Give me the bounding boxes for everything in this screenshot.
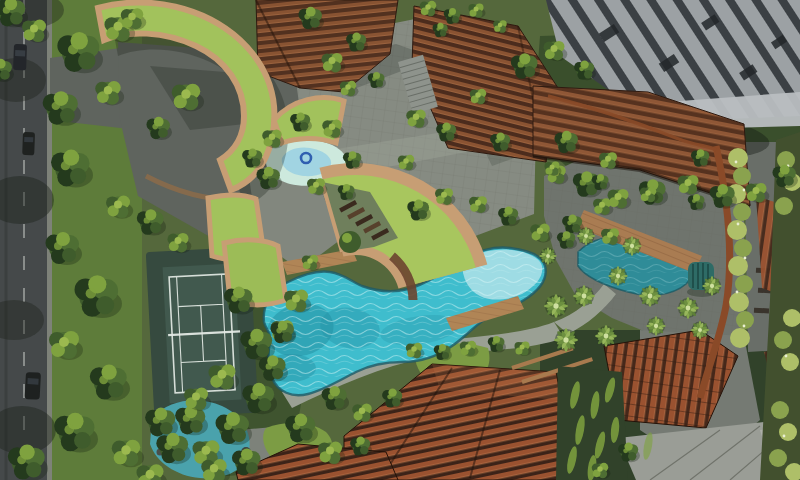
tree (172, 84, 204, 112)
tree (284, 290, 311, 313)
tree (470, 89, 489, 105)
car (22, 132, 35, 155)
palm-tree (544, 294, 568, 318)
tree (469, 196, 489, 213)
palm-tree (639, 285, 661, 307)
tree (184, 388, 211, 411)
palm-tree (577, 227, 596, 246)
palm-tree (646, 316, 666, 336)
palm-tree (622, 236, 642, 256)
tree (406, 343, 425, 359)
tree (469, 4, 486, 19)
car (25, 372, 41, 400)
tree (95, 81, 124, 106)
car (13, 44, 27, 70)
palm-tree (573, 285, 595, 307)
tree (640, 187, 659, 203)
tree (262, 130, 284, 149)
tree (530, 224, 552, 243)
tree (398, 155, 417, 171)
tree (318, 442, 345, 465)
tree (340, 81, 359, 97)
palm-tree (608, 266, 628, 286)
tree (322, 120, 344, 139)
tree (515, 342, 532, 357)
palm-tree (691, 321, 710, 340)
tree (435, 188, 455, 205)
tree (352, 404, 374, 423)
tree (121, 8, 147, 30)
tree (746, 183, 770, 203)
palm-tree (539, 247, 557, 265)
tree (307, 178, 327, 195)
tree (599, 152, 619, 169)
tree (678, 175, 702, 195)
tree (106, 196, 133, 219)
tree (22, 20, 49, 43)
tree (592, 463, 611, 479)
tree (406, 110, 428, 129)
tree (493, 20, 508, 33)
tree (460, 341, 479, 357)
tree (322, 53, 346, 73)
tree (209, 364, 240, 390)
tree (49, 331, 83, 360)
aerial-render (0, 0, 800, 480)
palm-tree (702, 276, 722, 296)
tree (608, 189, 632, 209)
tree (544, 41, 568, 61)
tree (168, 233, 192, 253)
palm-tree (554, 328, 578, 352)
tree (545, 162, 562, 177)
tree (112, 440, 144, 468)
aerial-render-canvas (0, 0, 800, 480)
tree (420, 1, 439, 17)
tree (302, 255, 321, 271)
palm-tree (595, 325, 617, 347)
palm-tree (677, 297, 699, 319)
tree (601, 228, 621, 245)
